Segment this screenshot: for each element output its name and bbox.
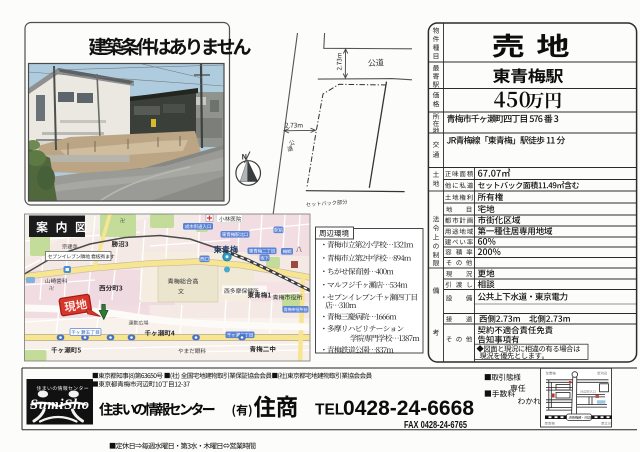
svg-text:0428-24-6668: 0428-24-6668 [343,397,474,420]
svg-text:SumiSho: SumiSho [30,397,89,413]
svg-text:FAX 0428-24-6765: FAX 0428-24-6765 [404,420,467,431]
svg-text:TEL: TEL [315,402,344,419]
